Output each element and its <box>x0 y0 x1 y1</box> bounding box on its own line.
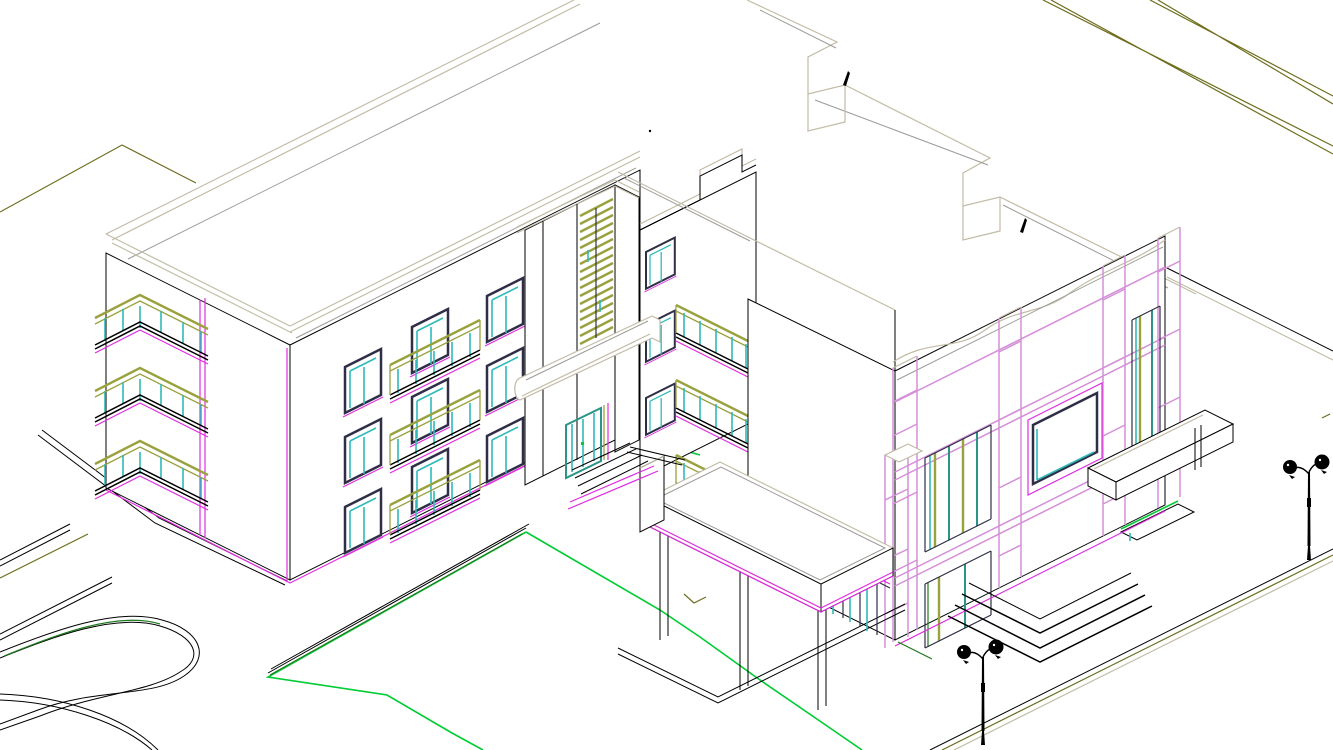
right-wing-back-parapet-inner <box>760 10 1168 288</box>
street-lamp <box>1283 455 1330 561</box>
road-edge-topleft-v <box>0 145 196 212</box>
cad-viewport <box>0 0 1333 750</box>
parapet-flag-mark-2 <box>1020 218 1027 233</box>
stray-dot <box>649 130 651 132</box>
curved-footpath <box>0 616 199 724</box>
road-curb-behind-right-wing <box>1167 277 1333 360</box>
isometric-wireframe-drawing <box>0 0 1333 750</box>
parapet-flag-mark-1 <box>843 71 850 86</box>
left-wing-roof-inner-edge <box>128 23 600 259</box>
path-left-segment-2 <box>0 577 112 640</box>
path-left-segment-1 <box>0 524 70 566</box>
tower-right-return <box>615 185 639 452</box>
olive-corner-mark <box>684 594 706 603</box>
right-wing-roof-frontleft-edge <box>748 237 895 310</box>
road-edge-topright-2 <box>1150 0 1333 104</box>
right-wing-back-parapet <box>747 0 1196 294</box>
olive-tick-near-lamp <box>1322 414 1330 418</box>
road-edge-topright-1 <box>1043 0 1333 154</box>
left-wing-end-face <box>106 253 290 580</box>
left-wing-roof-far-parapet <box>106 0 580 240</box>
path-left-olive-edge <box>0 534 88 578</box>
road-edge-behind-right-wing <box>1167 268 1333 351</box>
curved-footpath-inner <box>0 622 194 730</box>
door-handle <box>581 442 584 445</box>
